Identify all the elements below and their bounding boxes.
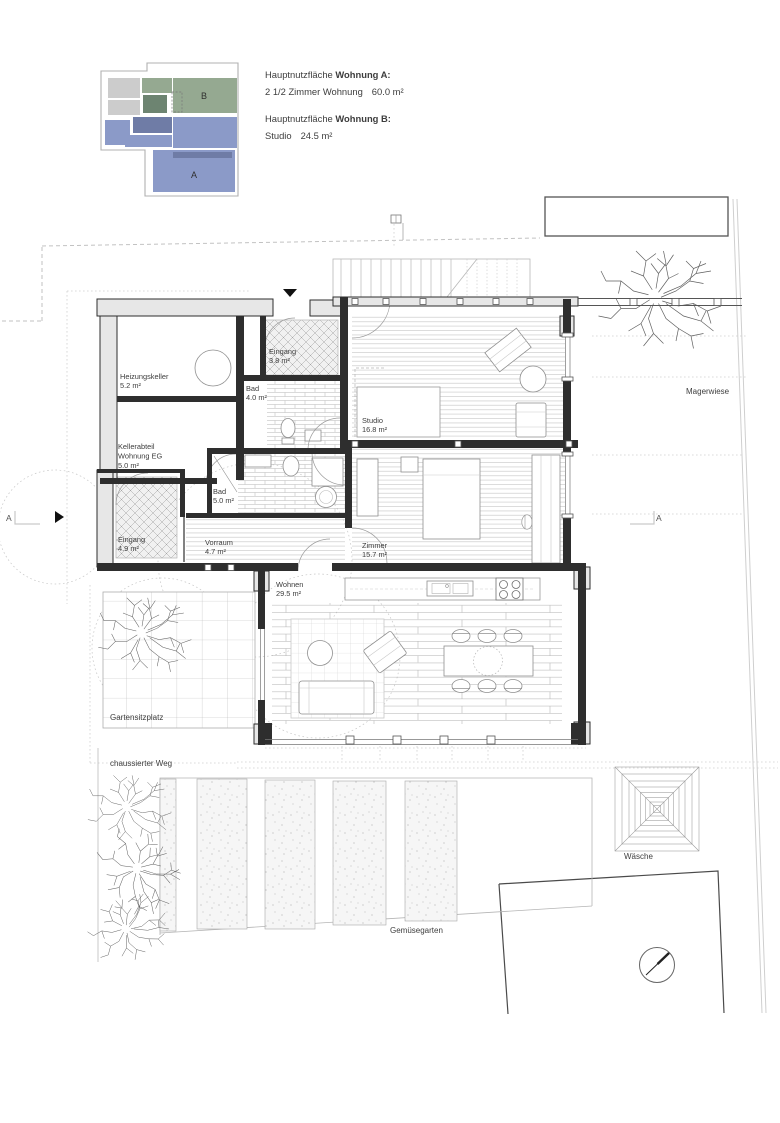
sofa	[299, 681, 374, 714]
dining-chair	[452, 630, 470, 643]
keyplan-unit-a-label: A	[191, 170, 197, 180]
stairs	[333, 259, 530, 297]
heating-tank	[195, 350, 231, 386]
garden-wall-east	[578, 299, 742, 306]
kitchen	[345, 578, 540, 600]
elevation-symbol-icon	[391, 215, 403, 240]
entrance-marker-icon	[283, 289, 297, 297]
legend-text: Hauptnutzfläche Wohnung A: 2 1/2 Zimmer …	[265, 69, 404, 141]
site-label-gartensitzplatz: Gartensitzplatz	[110, 713, 163, 722]
site-label-gemuesegarten: Gemüsegarten	[390, 926, 443, 935]
nightstand	[401, 457, 418, 472]
svg-text:A: A	[6, 513, 12, 523]
washer-icon	[316, 487, 337, 508]
legend-line-a: 2 1/2 Zimmer Wohnung60.0 m²	[265, 86, 404, 97]
floor-plan-drawing: Heizungskeller 5.2 m² Kellerabteil Wohnu…	[0, 0, 780, 1123]
closet	[532, 455, 560, 563]
section-marker-right: A	[630, 511, 662, 524]
site-label-magerwiese: Magerwiese	[686, 387, 730, 396]
room-label-wohnen: Wohnen 29.5 m²	[276, 580, 305, 598]
coffee-table	[308, 641, 333, 666]
tree-icon	[88, 775, 171, 841]
section-arrow-icon	[55, 511, 64, 523]
property-path-line	[733, 199, 766, 1013]
svg-text:A: A	[656, 513, 662, 523]
wardrobe	[357, 459, 378, 516]
dining-chair	[504, 680, 522, 693]
dining-chair	[452, 680, 470, 693]
toilet-icon	[281, 419, 295, 438]
legend-title-b: Hauptnutzfläche Wohnung B:	[265, 113, 391, 124]
tree-icon	[599, 251, 722, 349]
bath-cabinet	[312, 458, 343, 486]
floor-plan-page: Heizungskeller 5.2 m² Kellerabteil Wohnu…	[0, 0, 780, 1123]
site-label-waesche: Wäsche	[624, 852, 653, 861]
dining-table	[444, 646, 533, 676]
room-label-studio: Studio 16.8 m²	[362, 416, 388, 434]
bed	[423, 459, 480, 539]
section-marker-left: A	[6, 511, 64, 524]
dining-chair	[478, 630, 496, 643]
stove-icon	[496, 578, 523, 600]
sink-icon	[245, 455, 271, 467]
cistern	[282, 438, 294, 444]
room-label-bad-eg: Bad 5.0 m²	[213, 487, 234, 505]
chair	[522, 515, 532, 529]
garden-seating-area	[103, 592, 255, 728]
legend-title-a: Hauptnutzfläche Wohnung A:	[265, 69, 391, 80]
sink-icon	[305, 430, 321, 441]
legend-line-b: Studio24.5 m²	[265, 130, 332, 141]
neighbour-building-north	[545, 197, 728, 236]
room-label-bad-og: Bad 4.0 m²	[246, 384, 267, 402]
room-label-heizungskeller: Heizungskeller 5.2 m²	[120, 372, 171, 390]
dining-chair	[478, 680, 496, 693]
legend-keyplan: B A	[101, 63, 238, 196]
toilet-icon	[283, 456, 299, 476]
clothes-dryer	[615, 767, 699, 851]
side-table	[520, 366, 546, 392]
site-label-weg: chaussierter Weg	[110, 759, 172, 768]
neighbour-building-south	[499, 871, 724, 1014]
dining-chair	[504, 630, 522, 643]
floor-bad-og-tiles	[267, 381, 340, 448]
armchair	[516, 403, 546, 437]
vegetable-garden	[98, 748, 592, 962]
room-label-kellerabteil: Kellerabteil Wohnung EG 5.0 m²	[118, 442, 164, 470]
room-label-zimmer: Zimmer 15.7 m²	[362, 541, 389, 559]
north-arrow-icon	[640, 948, 675, 983]
keyplan-unit-b-label: B	[201, 91, 207, 101]
